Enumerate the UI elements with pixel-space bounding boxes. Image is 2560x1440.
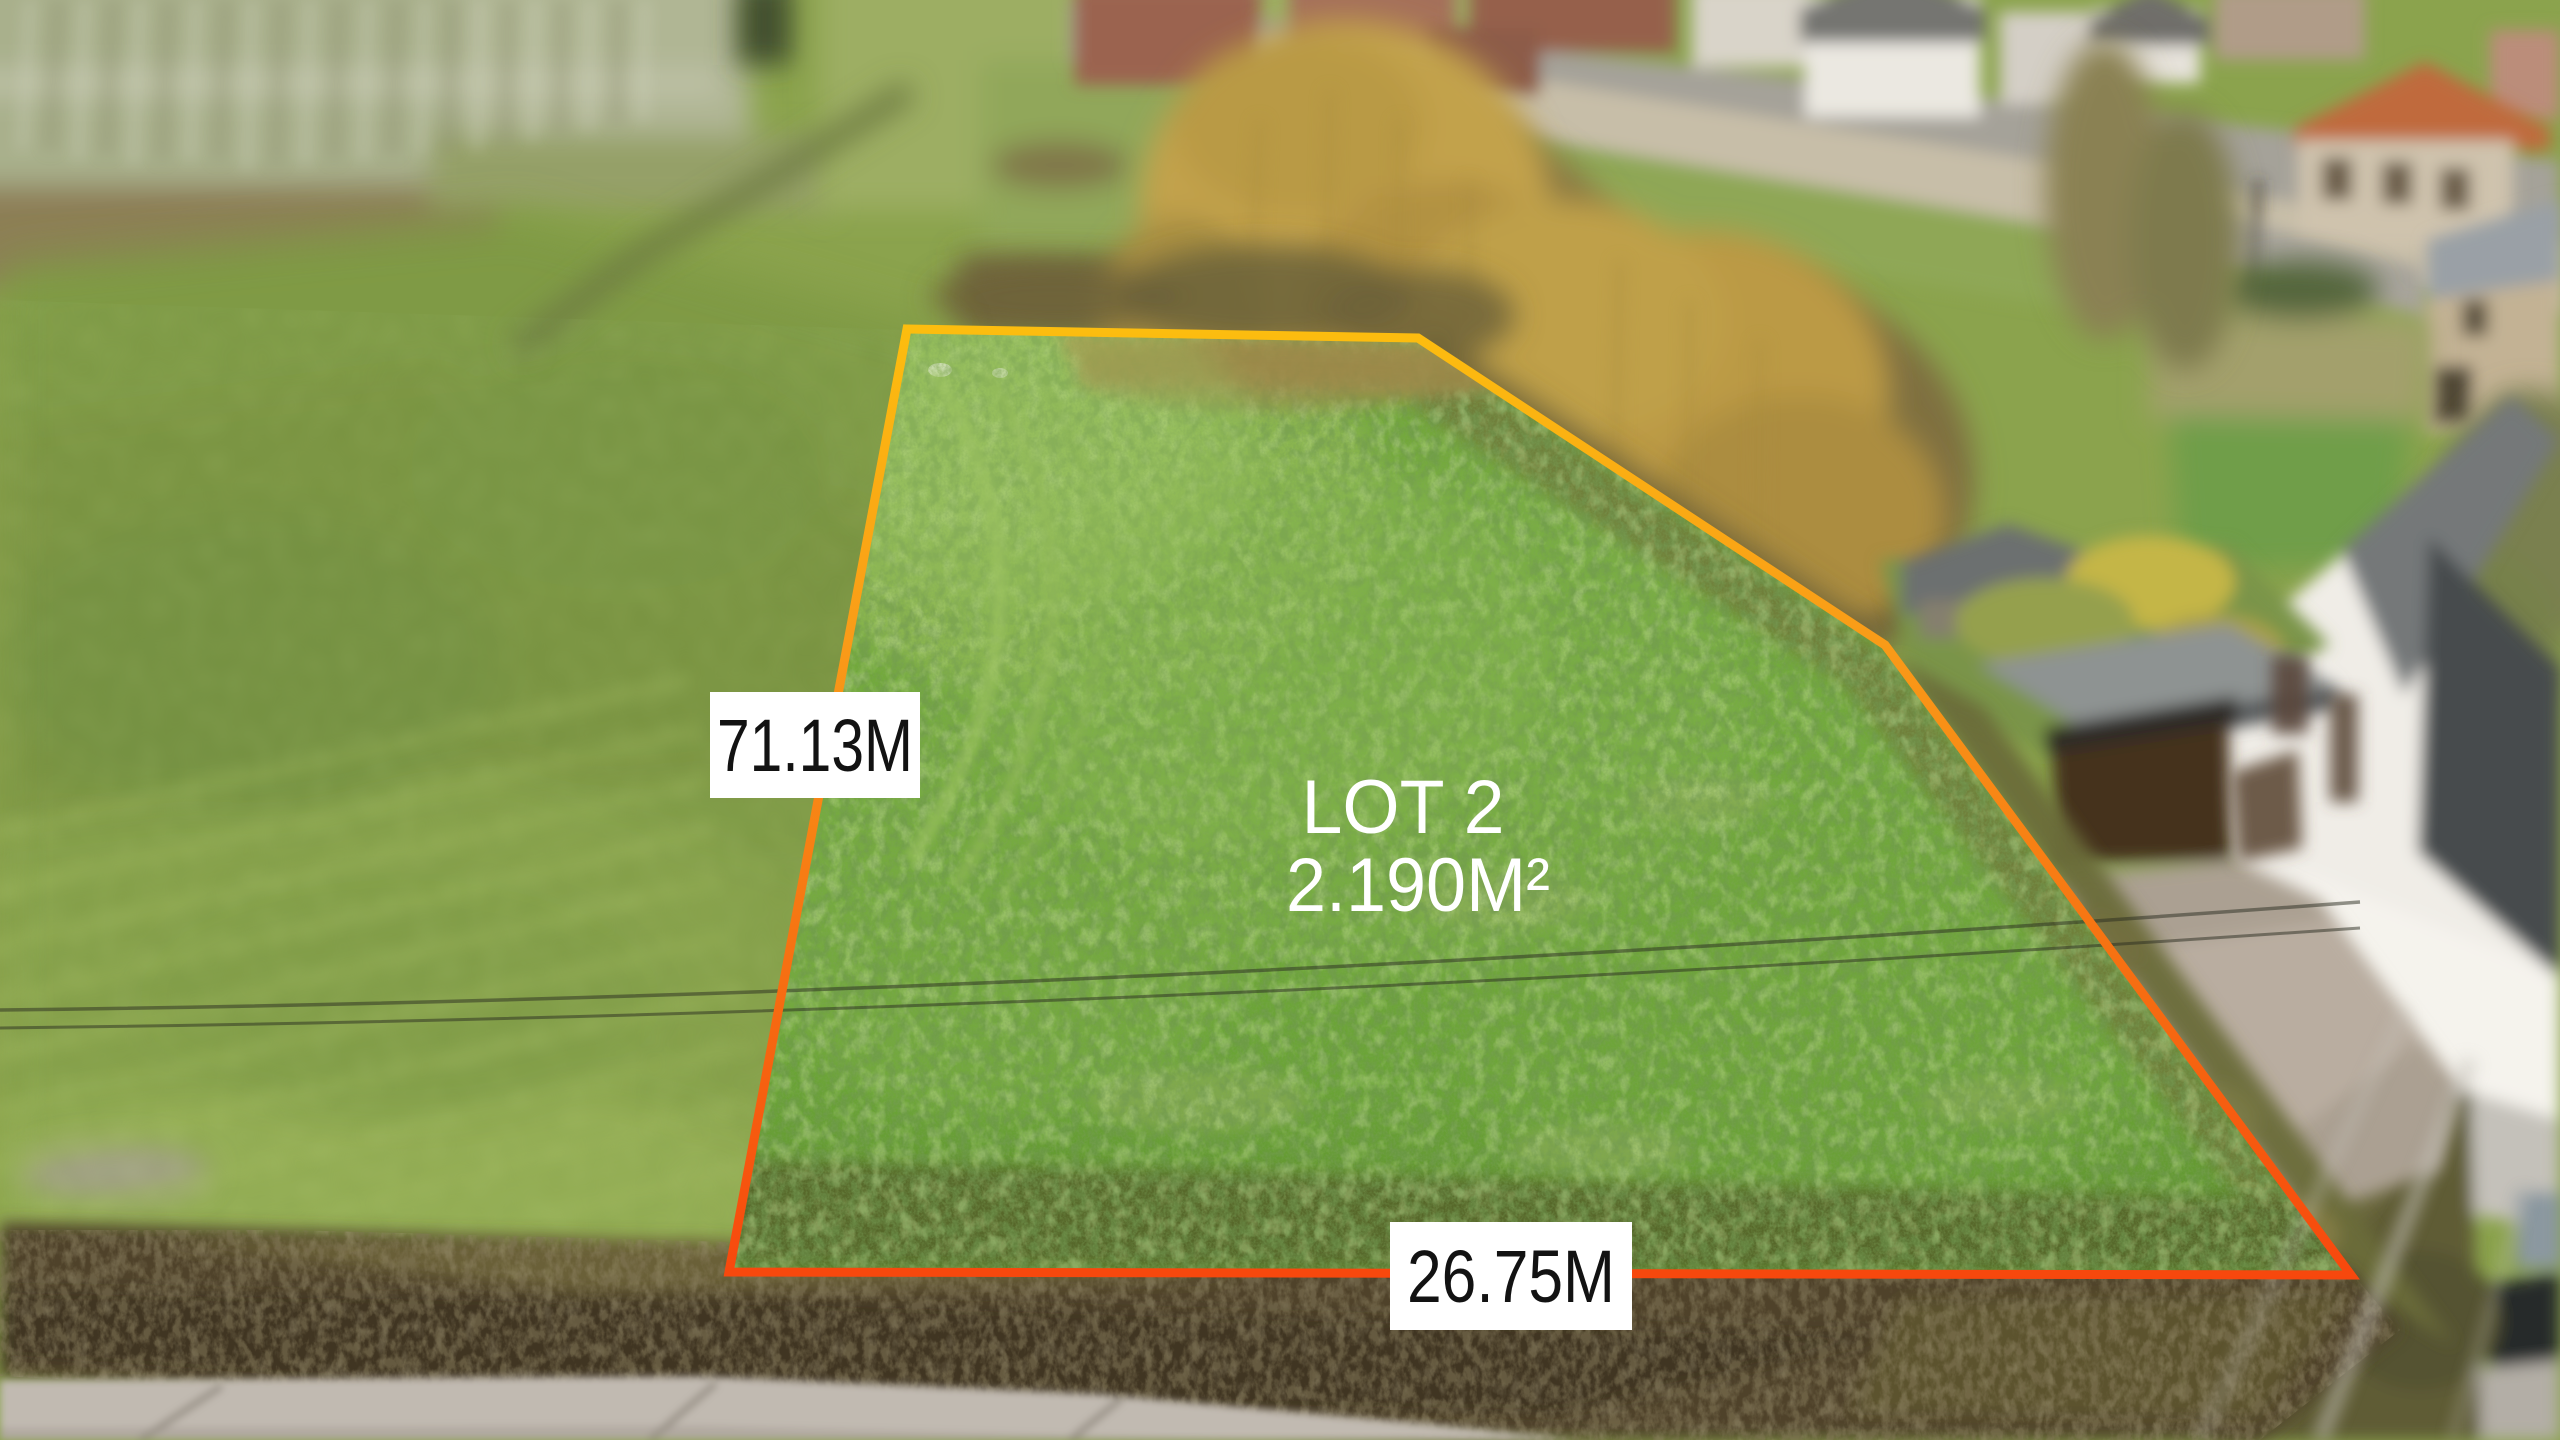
svg-text:26.75M: 26.75M	[1407, 1235, 1615, 1318]
svg-text:71.13M: 71.13M	[717, 704, 913, 787]
svg-text:2.190M²: 2.190M²	[1286, 843, 1550, 928]
svg-text:LOT 2: LOT 2	[1302, 765, 1505, 850]
